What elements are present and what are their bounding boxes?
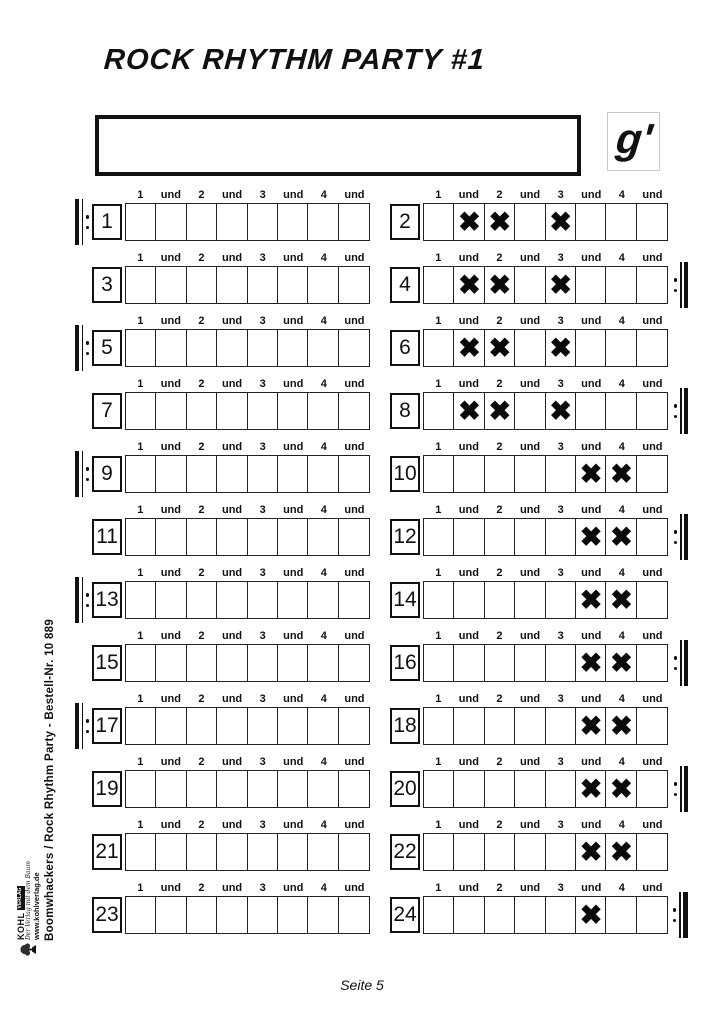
beat-label: und [217, 378, 248, 392]
measure-row: 1und2und3und4und12✖✖ [390, 504, 672, 567]
beat-mark-x: ✖ [549, 272, 572, 299]
beat-label: und [515, 567, 546, 581]
beat-mark-x: ✖ [458, 335, 481, 362]
beat-mark-x: ✖ [458, 209, 481, 236]
beat-cell [338, 833, 370, 871]
beat-label: und [278, 252, 309, 266]
beat-mark-x: ✖ [489, 335, 512, 362]
beat-label: und [454, 378, 485, 392]
beat-cell [125, 203, 157, 241]
beat-label: 3 [247, 630, 278, 644]
beat-cells: ✖✖✖ [423, 266, 668, 304]
beat-cell [125, 833, 157, 871]
measure-boxes-row: 13 [92, 581, 374, 619]
measure-boxes-row: 16✖✖ [390, 644, 672, 682]
beat-cell [636, 266, 668, 304]
measure-boxes-row: 20✖✖ [390, 770, 672, 808]
beat-cell [186, 455, 218, 493]
beat-label: und [156, 819, 187, 833]
beat-cell [277, 770, 309, 808]
beat-mark-x: ✖ [489, 272, 512, 299]
beat-label: 4 [607, 252, 638, 266]
beat-cell [514, 203, 546, 241]
beat-label: 1 [125, 504, 156, 518]
beat-label: 2 [186, 315, 217, 329]
beat-cells: ✖✖ [423, 581, 668, 619]
beat-cell [636, 203, 668, 241]
beat-label: 2 [484, 693, 515, 707]
beat-cell [484, 770, 516, 808]
beat-cell [216, 770, 248, 808]
beat-mark-x: ✖ [458, 398, 481, 425]
beat-label: und [637, 189, 668, 203]
beat-cell [338, 518, 370, 556]
beat-label: 3 [545, 504, 576, 518]
beat-label: 4 [607, 693, 638, 707]
beat-label: 4 [309, 189, 340, 203]
beat-cell [216, 581, 248, 619]
beat-cell [277, 392, 309, 430]
beat-cell [514, 833, 546, 871]
beat-cell: ✖ [575, 896, 607, 934]
beat-mark-x: ✖ [610, 713, 633, 740]
beat-label: 1 [125, 630, 156, 644]
measure-row: 1und2und3und4und24✖ [390, 882, 672, 945]
beat-cells [125, 770, 370, 808]
beat-label: 3 [247, 189, 278, 203]
measure-number: 20 [390, 771, 420, 807]
measure-row: 1und2und3und4und23 [92, 882, 374, 945]
beat-cell: ✖ [545, 203, 577, 241]
measure-row: 1und2und3und4und18✖✖ [390, 693, 672, 756]
beat-cell [247, 203, 279, 241]
beat-label: 3 [545, 441, 576, 455]
measure-boxes-row: 22✖✖ [390, 833, 672, 871]
beat-label: 2 [484, 252, 515, 266]
beat-cell [216, 833, 248, 871]
beat-cell [545, 644, 577, 682]
beat-cell [155, 329, 187, 367]
beat-label: und [576, 693, 607, 707]
beat-cell [277, 896, 309, 934]
measure-row: 1und2und3und4und22✖✖ [390, 819, 672, 882]
beat-label: 2 [484, 756, 515, 770]
beat-label: und [278, 693, 309, 707]
beat-label: und [454, 189, 485, 203]
beat-label: 3 [545, 756, 576, 770]
measure-row: 1und2und3und4und14✖✖ [390, 567, 672, 630]
beat-label: 2 [186, 693, 217, 707]
beat-cell [277, 518, 309, 556]
beat-label: und [156, 441, 187, 455]
beat-cell: ✖ [575, 518, 607, 556]
worksheet-page: ROCK RHYTHM PARTY #1 g' 1und2und3und4und… [0, 0, 724, 1024]
beat-label: und [515, 504, 546, 518]
beat-label: 4 [309, 630, 340, 644]
measure-number: 9 [92, 456, 122, 492]
beat-label: 4 [607, 189, 638, 203]
beat-cell [125, 455, 157, 493]
beat-cell [186, 896, 218, 934]
beat-labels: 1und2und3und4und [125, 315, 374, 329]
publisher-logo: KOHL VERLAG Der Verlag mit dem Baum www.… [16, 844, 42, 956]
measure-number: 22 [390, 834, 420, 870]
measure-boxes-row: 6✖✖✖ [390, 329, 672, 367]
beat-label: und [637, 441, 668, 455]
beat-cells [125, 833, 370, 871]
beat-label: 2 [484, 189, 515, 203]
beat-label: und [278, 819, 309, 833]
beat-cell [186, 266, 218, 304]
beat-cell [423, 203, 455, 241]
beat-label: und [454, 567, 485, 581]
beat-label: 3 [247, 693, 278, 707]
beat-cell [545, 455, 577, 493]
beat-label: und [278, 567, 309, 581]
end-repeat-sign [674, 262, 688, 308]
measure-boxes-row: 1 [92, 203, 374, 241]
measure-row: 1und2und3und4und19 [92, 756, 374, 819]
beat-label: 4 [607, 882, 638, 896]
beat-label: 2 [484, 882, 515, 896]
beat-label: 1 [125, 693, 156, 707]
beat-cell [216, 455, 248, 493]
measure-row: 1und2und3und4und11 [92, 504, 374, 567]
beat-label: und [515, 378, 546, 392]
beat-label: und [278, 315, 309, 329]
begin-repeat-sign [75, 199, 89, 245]
beat-label: und [637, 504, 668, 518]
beat-label: 1 [125, 189, 156, 203]
beat-cell [277, 707, 309, 745]
beat-cell [125, 329, 157, 367]
beat-cell [484, 707, 516, 745]
beat-label: und [278, 882, 309, 896]
beat-cell [636, 392, 668, 430]
measure-number: 13 [92, 582, 122, 618]
beat-label: und [515, 630, 546, 644]
beat-label: 1 [423, 693, 454, 707]
beat-label: 2 [186, 756, 217, 770]
beat-cells: ✖✖ [423, 770, 668, 808]
beat-labels: 1und2und3und4und [423, 630, 672, 644]
beat-label: 3 [545, 189, 576, 203]
beat-cell: ✖ [605, 770, 637, 808]
beat-cell [484, 455, 516, 493]
beat-cells: ✖✖✖ [423, 329, 668, 367]
beat-cell [338, 581, 370, 619]
beat-label: und [339, 756, 370, 770]
beat-cell [125, 896, 157, 934]
measure-row: 1und2und3und4und1 [92, 189, 374, 252]
beat-cell [514, 581, 546, 619]
beat-cell [247, 833, 279, 871]
beat-label: und [339, 630, 370, 644]
beat-cell [186, 644, 218, 682]
beat-label: und [515, 756, 546, 770]
beat-cell [636, 455, 668, 493]
logo-url: www.kohlverlag.de [33, 861, 42, 940]
beat-label: und [156, 252, 187, 266]
beat-label: 1 [423, 630, 454, 644]
beat-label: und [156, 882, 187, 896]
beat-cell: ✖ [484, 329, 516, 367]
beat-cells [125, 455, 370, 493]
beat-label: 2 [186, 378, 217, 392]
beat-cell: ✖ [545, 329, 577, 367]
beat-label: 4 [309, 252, 340, 266]
beat-label: und [156, 189, 187, 203]
beat-cells: ✖✖ [423, 644, 668, 682]
beat-label: 4 [607, 441, 638, 455]
beat-cell: ✖ [605, 581, 637, 619]
beat-cell [453, 770, 485, 808]
beat-cell [216, 329, 248, 367]
logo-text-lines: KOHL VERLAG Der Verlag mit dem Baum www.… [16, 861, 42, 940]
beat-cell [216, 518, 248, 556]
measure-boxes-row: 3 [92, 266, 374, 304]
beat-cell [545, 770, 577, 808]
beat-cells [125, 203, 370, 241]
beat-mark-x: ✖ [610, 587, 633, 614]
measure-boxes-row: 12✖✖ [390, 518, 672, 556]
beat-label: 1 [125, 756, 156, 770]
beat-cells [125, 644, 370, 682]
measure-boxes-row: 5 [92, 329, 374, 367]
beat-cell [125, 266, 157, 304]
beat-label: und [576, 189, 607, 203]
beat-cell [277, 644, 309, 682]
beat-label: 4 [607, 630, 638, 644]
begin-repeat-sign [75, 577, 89, 623]
beat-cell [514, 266, 546, 304]
beat-cell [277, 203, 309, 241]
beat-label: 4 [607, 819, 638, 833]
beat-label: und [339, 567, 370, 581]
beat-cell: ✖ [484, 203, 516, 241]
beat-mark-x: ✖ [580, 839, 603, 866]
beat-cell [307, 581, 339, 619]
beat-label: und [576, 882, 607, 896]
beat-labels: 1und2und3und4und [423, 756, 672, 770]
beat-label: 2 [186, 630, 217, 644]
beat-cell [186, 203, 218, 241]
beat-label: 2 [484, 441, 515, 455]
beat-mark-x: ✖ [580, 650, 603, 677]
beat-cell [155, 392, 187, 430]
beat-label: und [339, 441, 370, 455]
beat-label: und [217, 252, 248, 266]
beat-cell: ✖ [605, 833, 637, 871]
measure-row: 1und2und3und4und3 [92, 252, 374, 315]
measure-row: 1und2und3und4und2✖✖✖ [390, 189, 672, 252]
beat-cell [575, 392, 607, 430]
beat-label: 2 [186, 819, 217, 833]
beat-cell [155, 644, 187, 682]
beat-label: 1 [423, 567, 454, 581]
measure-number: 14 [390, 582, 420, 618]
measure-boxes-row: 2✖✖✖ [390, 203, 672, 241]
beat-cell [125, 581, 157, 619]
beat-cell [423, 329, 455, 367]
beat-cell [186, 329, 218, 367]
beat-label: 2 [484, 819, 515, 833]
beat-cell [216, 392, 248, 430]
beat-labels: 1und2und3und4und [423, 252, 672, 266]
beat-cell: ✖ [453, 392, 485, 430]
measure-number: 11 [92, 519, 122, 555]
beat-label: und [217, 315, 248, 329]
measure-number: 3 [92, 267, 122, 303]
beat-cell [423, 581, 455, 619]
beat-label: und [217, 504, 248, 518]
begin-repeat-sign [75, 451, 89, 497]
final-end-repeat-sign [673, 892, 688, 938]
beat-labels: 1und2und3und4und [423, 567, 672, 581]
beat-label: und [454, 693, 485, 707]
beat-cell [636, 833, 668, 871]
beat-cell [247, 266, 279, 304]
beat-label: und [576, 630, 607, 644]
measure-boxes-row: 17 [92, 707, 374, 745]
beat-cell [247, 581, 279, 619]
beat-cell [216, 707, 248, 745]
beat-mark-x: ✖ [580, 461, 603, 488]
beat-label: und [637, 630, 668, 644]
beat-cells: ✖✖ [423, 455, 668, 493]
beat-label: 2 [186, 882, 217, 896]
measure-number: 10 [390, 456, 420, 492]
beat-cell [307, 266, 339, 304]
beat-cell [247, 896, 279, 934]
beat-cell [545, 707, 577, 745]
beat-label: und [339, 189, 370, 203]
beat-label: 4 [309, 756, 340, 770]
measure-number: 16 [390, 645, 420, 681]
beat-cell [307, 329, 339, 367]
beat-cell [453, 707, 485, 745]
beat-label: 2 [186, 252, 217, 266]
beat-cell: ✖ [575, 770, 607, 808]
beat-label: 4 [607, 378, 638, 392]
beat-label: und [454, 819, 485, 833]
beat-cell: ✖ [575, 833, 607, 871]
beat-labels: 1und2und3und4und [423, 504, 672, 518]
beat-cell [484, 518, 516, 556]
beat-labels: 1und2und3und4und [125, 378, 374, 392]
measure-boxes-row: 9 [92, 455, 374, 493]
beat-label: 4 [607, 315, 638, 329]
beat-label: 3 [545, 378, 576, 392]
beat-label: 4 [309, 315, 340, 329]
beat-cell [423, 707, 455, 745]
beat-cell [423, 770, 455, 808]
beat-label: und [576, 378, 607, 392]
measure-row: 1und2und3und4und7 [92, 378, 374, 441]
beat-cell [277, 329, 309, 367]
measure-number: 4 [390, 267, 420, 303]
end-repeat-sign [674, 514, 688, 560]
measure-number: 12 [390, 519, 420, 555]
beat-cell [247, 518, 279, 556]
beat-labels: 1und2und3und4und [125, 252, 374, 266]
beat-cell [423, 518, 455, 556]
beat-cell: ✖ [605, 707, 637, 745]
beat-cell [247, 392, 279, 430]
beat-label: 4 [309, 882, 340, 896]
beat-label: und [278, 441, 309, 455]
beat-label: 2 [186, 504, 217, 518]
beat-cell [484, 581, 516, 619]
beat-label: 2 [186, 567, 217, 581]
beat-cell [514, 455, 546, 493]
beat-cell [453, 833, 485, 871]
beat-cells [125, 518, 370, 556]
beat-cell [155, 707, 187, 745]
measure-row: 1und2und3und4und5 [92, 315, 374, 378]
beat-cell [307, 518, 339, 556]
beat-label: und [217, 756, 248, 770]
beat-cell [155, 203, 187, 241]
beat-label: 1 [423, 252, 454, 266]
beat-cell [125, 392, 157, 430]
beat-cell [338, 329, 370, 367]
measure-row: 1und2und3und4und21 [92, 819, 374, 882]
measure-number: 1 [92, 204, 122, 240]
beat-cells [125, 896, 370, 934]
beat-label: 1 [125, 441, 156, 455]
beat-cells: ✖✖ [423, 707, 668, 745]
beat-label: und [217, 441, 248, 455]
beat-label: und [576, 756, 607, 770]
beat-label: 2 [484, 378, 515, 392]
beat-mark-x: ✖ [610, 461, 633, 488]
note-label: g' [613, 118, 654, 166]
beat-cell [575, 329, 607, 367]
beat-label: 4 [309, 504, 340, 518]
beat-cell: ✖ [484, 266, 516, 304]
beat-cell [423, 833, 455, 871]
beat-label: und [156, 378, 187, 392]
beat-cell [277, 581, 309, 619]
beat-cell [247, 707, 279, 745]
beat-cell [605, 392, 637, 430]
beat-cell [216, 644, 248, 682]
measure-number: 17 [92, 708, 122, 744]
beat-mark-x: ✖ [610, 650, 633, 677]
beat-cell [484, 896, 516, 934]
beat-label: und [576, 441, 607, 455]
beat-labels: 1und2und3und4und [423, 315, 672, 329]
beat-cell [307, 770, 339, 808]
beat-cell [247, 644, 279, 682]
beat-label: 2 [484, 630, 515, 644]
beat-mark-x: ✖ [549, 398, 572, 425]
beat-cell [423, 644, 455, 682]
measure-number: 23 [92, 897, 122, 933]
beat-cell [514, 329, 546, 367]
measure-boxes-row: 19 [92, 770, 374, 808]
beat-cells: ✖✖✖ [423, 392, 668, 430]
beat-cells [125, 392, 370, 430]
beat-cell: ✖ [484, 392, 516, 430]
beat-label: 4 [309, 378, 340, 392]
beat-label: 2 [186, 441, 217, 455]
beat-cell: ✖ [575, 455, 607, 493]
beat-cell [247, 770, 279, 808]
beat-cell [575, 266, 607, 304]
beat-labels: 1und2und3und4und [125, 819, 374, 833]
